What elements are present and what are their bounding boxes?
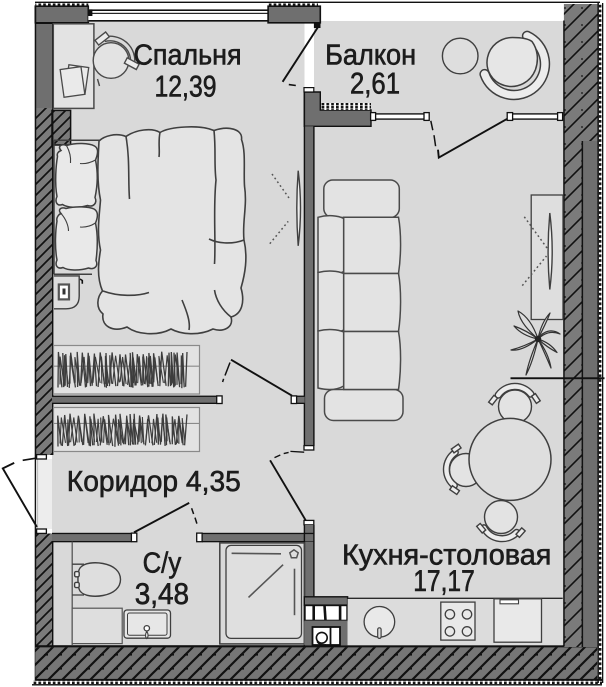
svg-text:17,17: 17,17 xyxy=(413,565,475,598)
svg-text:3,48: 3,48 xyxy=(135,578,189,611)
svg-text:12,39: 12,39 xyxy=(155,71,217,104)
svg-text:Спальня: Спальня xyxy=(134,40,242,72)
svg-text:2,61: 2,61 xyxy=(350,68,400,101)
svg-text:С/у: С/у xyxy=(143,548,182,580)
svg-text:Коридор 4,35: Коридор 4,35 xyxy=(67,466,241,498)
